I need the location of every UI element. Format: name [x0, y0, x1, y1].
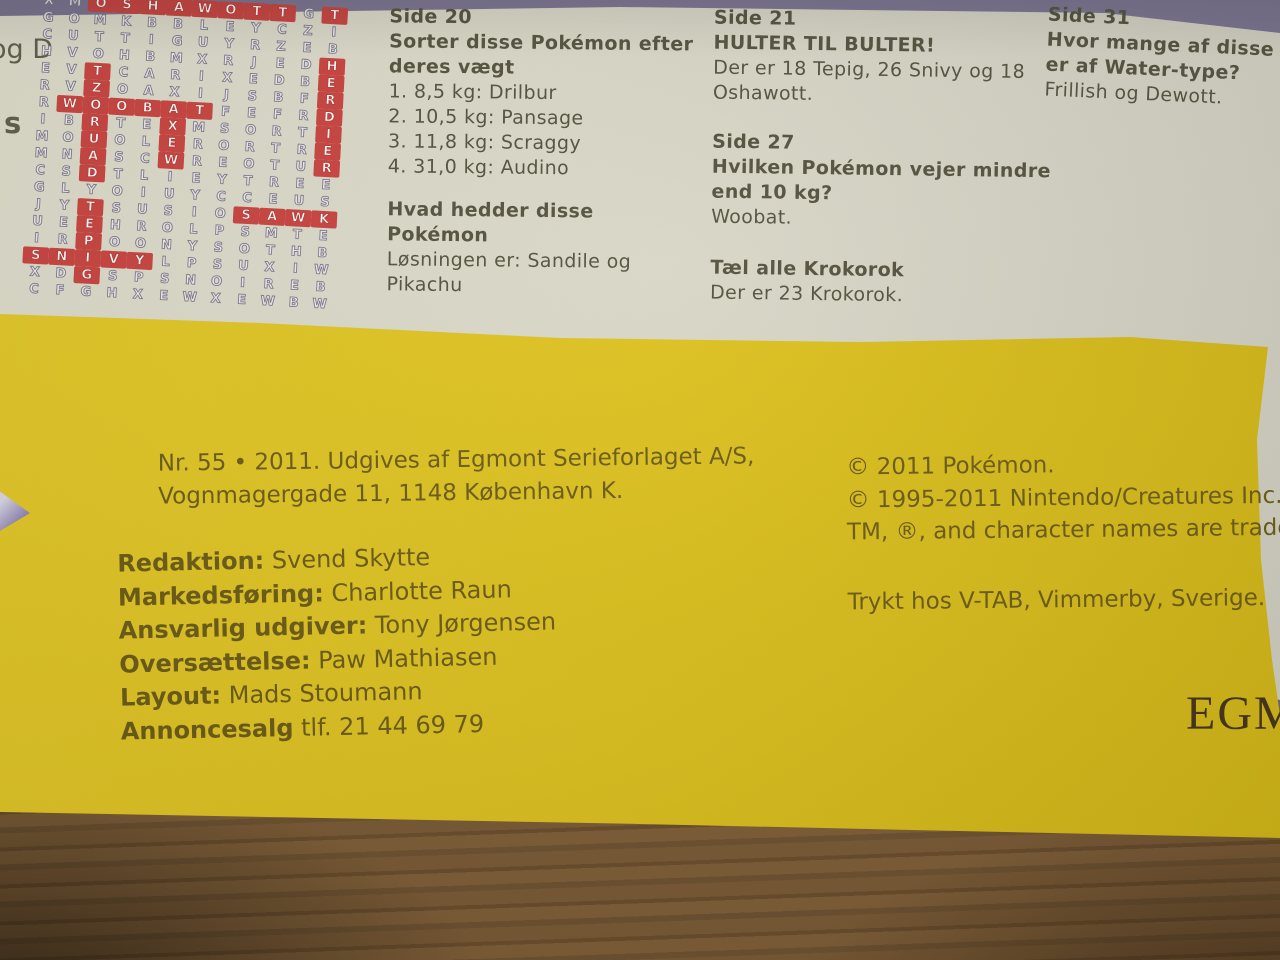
grid-cell: P — [75, 232, 102, 250]
copyright-line: TM, ®, and character names are trade — [847, 512, 1280, 549]
grid-cell: T — [186, 102, 213, 120]
grid-cell: V — [58, 61, 85, 79]
grid-cell: L — [191, 17, 218, 35]
grid-cell: C — [21, 280, 48, 298]
grid-cell: Y — [78, 181, 105, 199]
grid-cell: E — [150, 287, 177, 305]
grid-cell: C — [268, 21, 295, 39]
grid-cell: E — [314, 142, 341, 160]
grid-cell: O — [82, 96, 109, 114]
grid-cell: T — [105, 165, 132, 183]
grid-cell: S — [53, 163, 80, 181]
credit-label: Oversættelse: — [119, 646, 311, 678]
grid-cell: K — [311, 210, 338, 228]
grid-cell: B — [55, 112, 82, 130]
credit-value: Paw Mathiasen — [310, 642, 497, 674]
grid-cell: U — [80, 130, 107, 148]
grid-cell: U — [156, 185, 183, 203]
answer-text: Woobat. — [711, 205, 1059, 235]
copyright-line: © 2011 Pokémon. — [846, 447, 1280, 484]
grid-cell: F — [47, 282, 74, 300]
credit-value: tlf. 21 44 69 79 — [293, 709, 484, 741]
grid-cell: E — [32, 60, 59, 78]
grid-cell: T — [112, 30, 139, 48]
grid-cell: B — [134, 99, 161, 117]
grid-cell: E — [286, 175, 313, 193]
grid-cell: M — [163, 49, 190, 67]
grid-cell: H — [283, 243, 310, 261]
grid-cell: I — [229, 274, 256, 292]
grid-cell: G — [164, 32, 191, 50]
grid-cell: X — [256, 259, 283, 277]
grid-cell: S — [106, 149, 133, 167]
grid-cell: I — [74, 249, 101, 267]
grid-cell: S — [22, 246, 49, 264]
grid-cell: Z — [268, 38, 295, 56]
grid-cell: U — [287, 158, 314, 176]
grid-cell: C — [132, 150, 159, 168]
grid-cell: I — [282, 260, 309, 278]
copyright-line: © 1995-2011 Nintendo/Creatures Inc./G — [846, 479, 1280, 516]
grid-cell: X — [202, 290, 229, 308]
grid-cell: D — [79, 164, 106, 182]
grid-cell: G — [72, 283, 99, 301]
grid-cell: R — [260, 174, 287, 192]
grid-cell: T — [321, 7, 348, 25]
grid-cell: S — [151, 270, 178, 288]
grid-cell: E — [260, 191, 287, 209]
grid-cell: R — [263, 123, 290, 141]
solutions-column-side21-27: Side 21 HULTER TIL BULTER! Der er 18 Tep… — [710, 6, 1062, 311]
grid-cell: R — [31, 77, 58, 95]
grid-cell: G — [35, 9, 62, 27]
credit-label: Annoncesalg — [120, 713, 293, 745]
grid-cell: O — [109, 81, 136, 99]
grid-cell: M — [29, 127, 56, 145]
section-title: Side 20 — [389, 4, 711, 32]
margin-text-fragment: s — [4, 106, 21, 140]
grid-cell: R — [290, 107, 317, 125]
credit-value: Mads Stoumann — [221, 677, 423, 709]
grid-cell: C — [110, 64, 137, 82]
grid-cell: B — [307, 278, 334, 296]
grid-cell: E — [76, 215, 103, 233]
grid-cell: R — [313, 159, 340, 177]
grid-cell: E — [310, 227, 337, 245]
grid-cell: V — [57, 78, 84, 96]
grid-cell: U — [129, 201, 156, 219]
grid-cell: Y — [209, 171, 236, 189]
grid-cell: O — [108, 98, 135, 116]
grid-cell: Y — [182, 187, 209, 205]
grid-cell: E — [209, 154, 236, 172]
grid-cell: B — [265, 89, 292, 107]
grid-cell: I — [315, 125, 342, 143]
grid-cell: E — [240, 70, 267, 88]
grid-cell: E — [228, 291, 255, 309]
grid-cell: E — [238, 104, 265, 122]
grid-cell: B — [292, 73, 319, 91]
grid-cell: R — [81, 113, 108, 131]
grid-cell: S — [205, 239, 232, 257]
grid-cell: I — [320, 24, 347, 42]
grid-cell: I — [187, 85, 214, 103]
grid-cell: O — [210, 137, 237, 155]
grid-cell: E — [281, 277, 308, 295]
grid-cell: R — [183, 153, 210, 171]
grid-cell: D — [47, 265, 74, 283]
grid-cell: E — [318, 75, 345, 93]
grid-cell: O — [217, 1, 244, 19]
grid-cell: T — [269, 4, 296, 22]
grid-cell: L — [152, 253, 179, 271]
grid-cell: X — [214, 69, 241, 87]
grid-cell: H — [319, 58, 346, 76]
grid-cell: Z — [83, 79, 110, 97]
credits-list: Redaktion: Svend SkytteMarkedsføring: Ch… — [117, 538, 559, 748]
grid-cell: E — [267, 55, 294, 73]
wordsearch-grid: XMOSHAWOTTGTGOMKBBLEYCZICUTTIGUYRZEBHVOH… — [21, 0, 349, 314]
credit-label: Ansvarlig udgiver: — [118, 611, 367, 644]
grid-cell: D — [316, 108, 343, 126]
grid-cell: R — [255, 276, 282, 294]
grid-cell: S — [103, 199, 130, 217]
answer-line: 2. 10,5 kg: Pansage — [388, 104, 710, 132]
credit-label: Redaktion: — [117, 547, 265, 578]
task-text: Hvad hedder disse Pokémon — [387, 197, 638, 250]
grid-cell: T — [284, 226, 311, 244]
grid-cell: B — [139, 14, 166, 32]
grid-cell: T — [257, 242, 284, 260]
grid-cell: R — [317, 91, 344, 109]
credit-value: Svend Skytte — [264, 543, 431, 574]
grid-cell: W — [254, 292, 281, 310]
grid-cell: T — [261, 157, 288, 175]
grid-cell: X — [124, 286, 151, 304]
grid-cell: R — [49, 231, 76, 249]
grid-cell: S — [233, 206, 260, 224]
grid-cell: N — [153, 236, 180, 254]
task-text: Sorter disse Pokémon efter deres vægt — [389, 29, 712, 82]
grid-cell: X — [21, 263, 48, 281]
grid-cell: B — [137, 48, 164, 66]
grid-cell: M — [87, 11, 114, 29]
grid-cell: A — [166, 0, 193, 17]
grid-cell: R — [288, 141, 315, 159]
grid-cell: I — [181, 204, 208, 222]
grid-cell: B — [320, 41, 347, 59]
credit-value: Tony Jørgensen — [367, 607, 556, 639]
grid-cell: Y — [243, 19, 270, 37]
grid-cell: J — [25, 195, 52, 213]
answer-text: Der er 18 Tepig, 26 Snivy og 18 Oshawott… — [713, 56, 1062, 111]
grid-cell: W — [158, 151, 185, 169]
grid-cell: E — [133, 116, 160, 134]
grid-cell: A — [160, 100, 187, 118]
grid-cell: O — [106, 132, 133, 150]
grid-cell: T — [84, 62, 111, 80]
grid-cell: D — [266, 72, 293, 90]
grid-cell: Y — [126, 252, 153, 270]
grid-cell: R — [242, 36, 269, 54]
answer-text: Der er 23 Krokorok. — [710, 281, 1058, 311]
grid-cell: D — [293, 56, 320, 74]
grid-cell: S — [99, 267, 126, 285]
grid-cell: C — [208, 188, 235, 206]
grid-cell: U — [190, 34, 217, 52]
grid-cell: S — [204, 256, 231, 274]
grid-cell: P — [125, 269, 152, 287]
grid-cell: R — [236, 138, 263, 156]
grid-cell: C — [34, 26, 61, 44]
grid-cell: H — [102, 216, 129, 234]
grid-cell: E — [183, 170, 210, 188]
grid-cell: O — [237, 121, 264, 139]
grid-cell: A — [135, 82, 162, 100]
credit-label: Layout: — [120, 681, 222, 711]
printer-line: Trykt hos V-TAB, Vimmerby, Sverige. — [848, 581, 1280, 618]
grid-cell: P — [206, 222, 233, 240]
grid-cell: W — [285, 209, 312, 227]
grid-cell: L — [180, 220, 207, 238]
grid-cell: T — [86, 28, 113, 46]
grid-cell: F — [212, 103, 239, 121]
grid-cell: R — [30, 93, 57, 111]
grid-cell: C — [234, 189, 261, 207]
grid-cell: E — [217, 18, 244, 36]
grid-cell: H — [140, 0, 167, 15]
grid-cell: I — [130, 184, 157, 202]
grid-cell: I — [188, 68, 215, 86]
grid-cell: R — [128, 218, 155, 236]
grid-cell: J — [241, 53, 268, 71]
solutions-column-side31: Side 31 Hvor mange af disse Po er af Wat… — [1044, 3, 1280, 122]
grid-cell: K — [113, 13, 140, 31]
task-text: Hvilken Pokémon vejer mindre end 10 kg? — [711, 155, 1060, 210]
grid-cell: W — [308, 261, 335, 279]
grid-cell: W — [56, 95, 83, 113]
grid-cell: A — [136, 65, 163, 83]
answer-line: 3. 11,8 kg: Scraggy — [388, 129, 710, 157]
grid-cell: J — [213, 86, 240, 104]
grid-cell: S — [232, 223, 259, 241]
grid-cell: X — [159, 117, 186, 135]
grid-cell: F — [264, 106, 291, 124]
grid-cell: O — [235, 155, 262, 173]
grid-cell: N — [177, 271, 204, 289]
grid-cell: C — [27, 161, 54, 179]
grid-cell: T — [235, 172, 262, 190]
grid-cell: O — [101, 233, 128, 251]
grid-cell: M — [28, 144, 55, 162]
grid-cell: W — [306, 295, 333, 313]
magazine-photo: og D s XMOSHAWOTTGTGOMKBBLEYCZICUTTIGUYR… — [0, 0, 1280, 960]
grid-cell: Y — [51, 197, 78, 215]
grid-cell: O — [104, 182, 131, 200]
grid-cell: N — [54, 146, 81, 164]
credit-label: Markedsføring: — [118, 579, 324, 611]
grid-cell: T — [243, 3, 270, 21]
answer-line: 4. 31,0 kg: Audino — [388, 154, 710, 182]
grid-cell: B — [280, 294, 307, 312]
grid-cell: S — [211, 120, 238, 138]
grid-cell: X — [189, 51, 216, 69]
grid-cell: T — [262, 140, 289, 158]
grid-cell: O — [207, 205, 234, 223]
grid-cell: N — [48, 248, 75, 266]
grid-cell: Y — [179, 237, 206, 255]
grid-cell: O — [85, 45, 112, 63]
egmont-logo: EGM — [1186, 686, 1280, 741]
side20-answers: 1. 8,5 kg: Drilbur2. 10,5 kg: Pansage3. … — [388, 79, 711, 182]
grid-cell: G — [73, 266, 100, 284]
grid-cell: O — [127, 235, 154, 253]
answer-line: 1. 8,5 kg: Drilbur — [388, 79, 710, 107]
grid-cell: T — [107, 115, 134, 133]
grid-cell: F — [291, 90, 318, 108]
grid-cell: M — [185, 119, 212, 137]
grid-cell: Y — [216, 35, 243, 53]
grid-cell: B — [309, 244, 336, 262]
grid-cell: W — [176, 288, 203, 306]
grid-cell: H — [98, 284, 125, 302]
grid-cell: U — [24, 212, 51, 230]
grid-cell: P — [178, 254, 205, 272]
answer-text: Løsningen er: Sandile og Pikachu — [386, 247, 677, 300]
grid-cell: R — [184, 136, 211, 154]
grid-cell: U — [286, 192, 313, 210]
grid-cell: A — [80, 147, 107, 165]
grid-cell: L — [132, 133, 159, 151]
grid-cell: R — [215, 52, 242, 70]
grid-cell: S — [155, 202, 182, 220]
grid-cell: O — [154, 219, 181, 237]
grid-cell: U — [60, 27, 87, 45]
grid-cell: O — [55, 129, 82, 147]
grid-cell: I — [23, 229, 50, 247]
grid-cell: E — [158, 134, 185, 152]
grid-cell: I — [157, 168, 184, 186]
grid-cell: O — [203, 273, 230, 291]
grid-cell: O — [61, 10, 88, 28]
grid-cell: T — [77, 198, 104, 216]
grid-cell: H — [33, 43, 60, 61]
grid-cell: W — [191, 0, 218, 18]
grid-cell: E — [312, 176, 339, 194]
publisher-address: Nr. 55 • 2011. Udgives af Egmont Seriefo… — [158, 440, 755, 513]
grid-cell: I — [138, 31, 165, 49]
grid-cell: V — [100, 250, 127, 268]
grid-cell: G — [26, 178, 53, 196]
grid-cell: Z — [294, 22, 321, 40]
grid-cell: H — [111, 47, 138, 65]
credit-value: Charlotte Raun — [323, 575, 512, 607]
solutions-column-side20: Side 20 Sorter disse Pokémon efter deres… — [386, 4, 711, 300]
grid-cell: L — [52, 180, 79, 198]
grid-cell: G — [295, 5, 322, 23]
grid-cell: S — [312, 193, 339, 211]
grid-cell: E — [50, 214, 77, 232]
grid-cell: L — [131, 167, 158, 185]
grid-cell: T — [289, 124, 316, 142]
grid-cell: B — [165, 15, 192, 33]
grid-cell: O — [231, 240, 258, 258]
grid-cell: E — [294, 39, 321, 57]
grid-cell: R — [162, 66, 189, 84]
grid-cell: U — [230, 257, 257, 275]
grid-cell: M — [258, 225, 285, 243]
grid-cell: X — [161, 83, 188, 101]
copyright-block: © 2011 Pokémon. © 1995-2011 Nintendo/Cre… — [846, 447, 1280, 619]
grid-cell: S — [239, 87, 266, 105]
grid-cell: I — [29, 110, 56, 128]
grid-cell: A — [259, 208, 286, 226]
grid-cell: V — [59, 44, 86, 62]
